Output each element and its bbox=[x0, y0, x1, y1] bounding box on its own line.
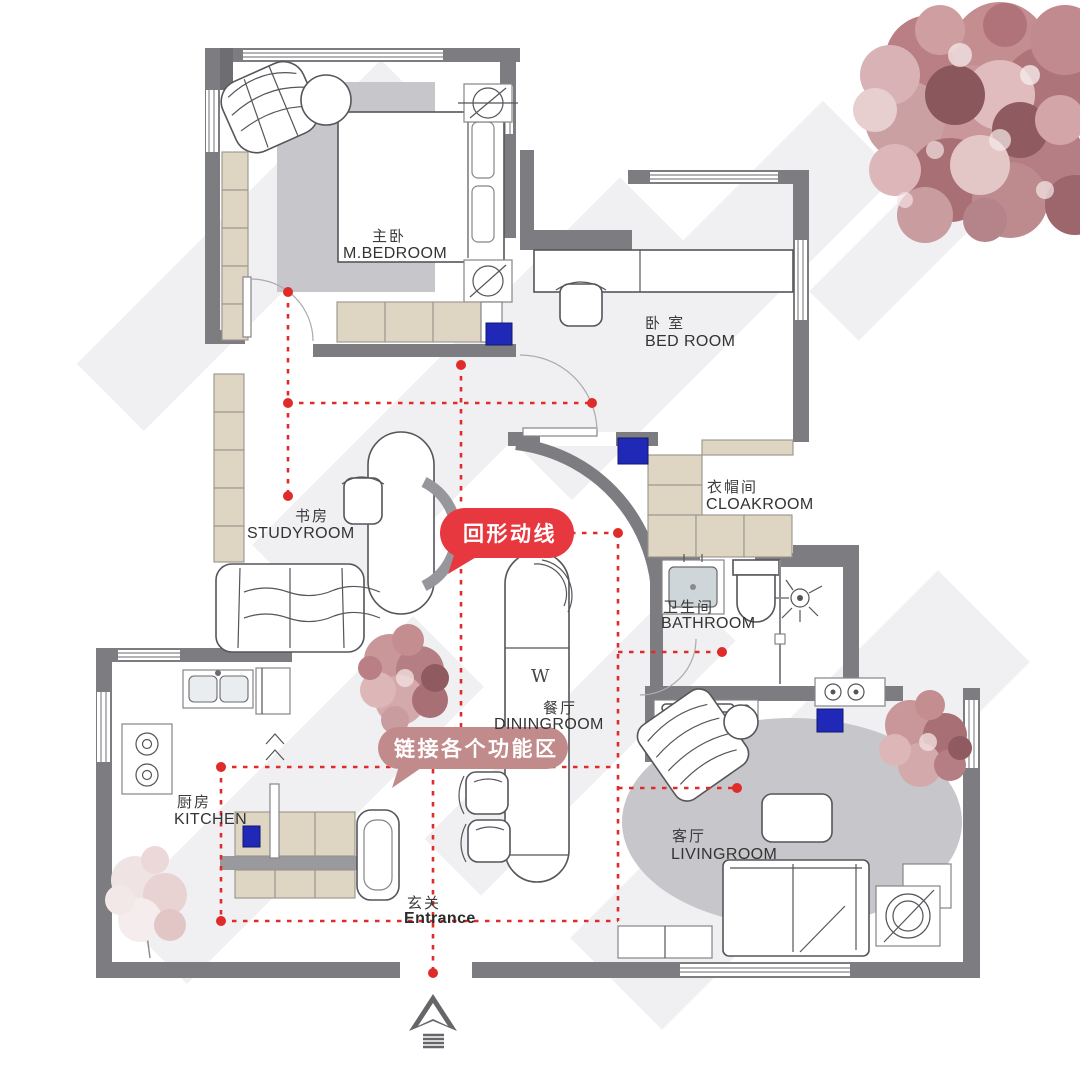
room-label-study-zh: 书房 bbox=[295, 508, 329, 525]
bedroom-chair bbox=[556, 282, 606, 326]
dining-table-letter: W bbox=[531, 666, 550, 687]
room-label-kitchen-zh: 厨房 bbox=[177, 794, 211, 811]
kitchen-stove bbox=[122, 724, 172, 794]
living-side-stool bbox=[724, 705, 758, 739]
door-marker-cloakroom bbox=[618, 438, 648, 464]
room-label-bathroom-zh: 卫生间 bbox=[663, 599, 714, 616]
mbedroom-ottoman bbox=[301, 75, 351, 125]
room-label-cloakroom-zh: 衣帽间 bbox=[707, 479, 758, 496]
room-label-bathroom-en: BATHROOM bbox=[661, 615, 755, 632]
tree-top-right bbox=[853, 2, 1080, 243]
door-marker-mbedroom bbox=[486, 323, 512, 345]
mbedroom-closet-row bbox=[337, 302, 502, 342]
room-label-bedroom-en: BED ROOM bbox=[645, 333, 735, 350]
room-label-bedroom-zh: 卧 室 bbox=[645, 315, 685, 332]
living-sofa bbox=[723, 860, 869, 956]
study-wardrobe bbox=[214, 374, 244, 562]
entrance-cabinet bbox=[618, 926, 712, 958]
room-label-living-en: LIVINGROOM bbox=[671, 846, 777, 863]
room-label-dining-zh: 餐厅 bbox=[543, 700, 577, 717]
kitchen-sink bbox=[183, 670, 253, 708]
room-label-dining-en: DININGROOM bbox=[494, 716, 604, 733]
bathroom-toilet bbox=[733, 560, 779, 622]
room-label-study-en: STUDYROOM bbox=[247, 525, 355, 542]
floor-plan-svg: W bbox=[0, 0, 1080, 1080]
kitchen-fridge bbox=[256, 668, 290, 714]
mbedroom-ceiling-symbol-top bbox=[458, 84, 518, 122]
door-marker-kitchen bbox=[243, 826, 260, 847]
living-fan-table bbox=[876, 886, 940, 946]
room-label-cloakroom-en: CLOAKROOM bbox=[706, 496, 814, 513]
room-label-entrance-en: Entrance bbox=[404, 910, 476, 927]
room-label-living-zh: 客厅 bbox=[672, 828, 706, 845]
floor-plan-canvas: W bbox=[0, 0, 1080, 1080]
entrance-arrow-icon bbox=[409, 994, 457, 1047]
room-label-kitchen-en: KITCHEN bbox=[174, 811, 247, 828]
door-marker-living bbox=[817, 709, 843, 732]
dining-chair-1 bbox=[459, 772, 508, 814]
callout-link-text: 链接各个功能区 bbox=[394, 737, 559, 761]
room-label-mbedroom-en: M.BEDROOM bbox=[343, 245, 447, 262]
shower-partition bbox=[775, 560, 785, 684]
double-hob-box bbox=[815, 678, 885, 706]
room-label-mbedroom-zh: 主卧 bbox=[372, 228, 406, 245]
coffee-table bbox=[762, 794, 832, 842]
study-chair bbox=[342, 477, 384, 524]
callout-loop-text: 回形动线 bbox=[463, 522, 557, 546]
dining-chair-2 bbox=[461, 820, 510, 862]
mbedroom-ceiling-symbol-bottom bbox=[464, 260, 512, 302]
shower-head-icon bbox=[775, 580, 822, 622]
study-sofa bbox=[216, 564, 380, 652]
